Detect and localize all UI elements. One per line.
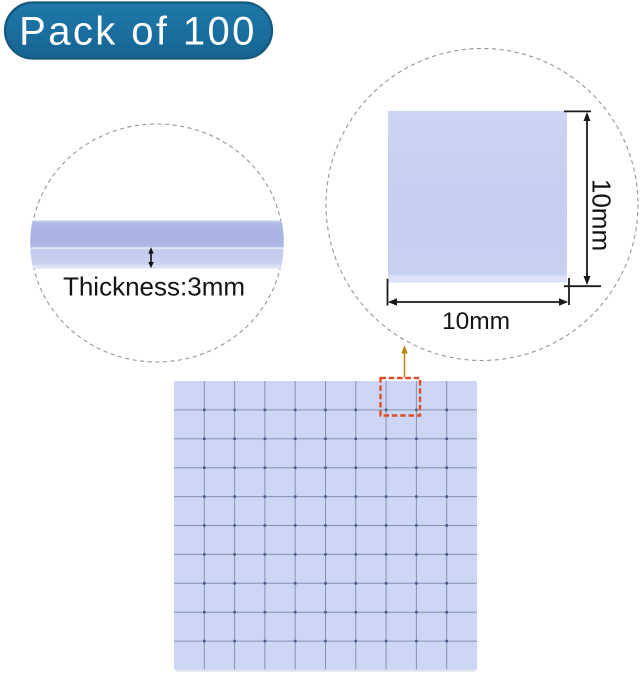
svg-text:10mm: 10mm — [587, 179, 617, 251]
svg-text:Pack of 100: Pack of 100 — [19, 10, 257, 54]
svg-text:Thickness:3mm: Thickness:3mm — [63, 272, 245, 302]
svg-text:10mm: 10mm — [442, 308, 510, 335]
